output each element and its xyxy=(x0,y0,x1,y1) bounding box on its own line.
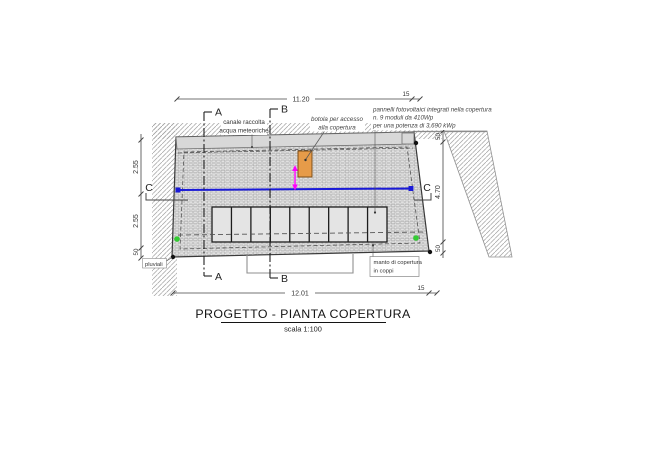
green-marker-right xyxy=(413,235,419,241)
pannelli-label-line2: n. 9 moduli da 410Wp xyxy=(373,115,434,122)
dim-top: 11.20 15 xyxy=(175,91,423,104)
drawing-svg: A A B B C C 11.20 15 12.01 15 2.55 2.55 xyxy=(0,0,650,459)
canale-leader-dot xyxy=(251,146,253,148)
gutter-end-box xyxy=(402,133,414,144)
canale-label-line2: acqua meteoriche xyxy=(219,128,269,135)
channel-endpoint-left xyxy=(176,188,181,193)
dim-right-top-label: 50 xyxy=(435,133,442,140)
dim-right-slope-label: 4.70 xyxy=(435,185,442,199)
title-block: PROGETTO - PIANTA COPERTURA scala 1:100 xyxy=(195,307,411,334)
pannelli-label-line1: pannelli fotovoltaici integrati nella co… xyxy=(372,107,492,114)
roof-access-hatch xyxy=(298,151,312,177)
dim-right: 50 4.70 50 xyxy=(435,129,446,259)
section-label-a-bottom: A xyxy=(215,271,222,283)
lower-volume-outline xyxy=(247,254,353,273)
dim-top-width-label: 11.20 xyxy=(293,97,310,104)
dim-left-upper-label: 2.55 xyxy=(133,160,140,174)
downpipe-dot-bottom-right xyxy=(428,250,432,254)
section-label-b-top: B xyxy=(281,104,288,116)
section-label-c-right: C xyxy=(423,182,431,194)
manto-label-line1: manto di copertura xyxy=(374,260,423,266)
dim-left-lower-label: 2.55 xyxy=(133,214,140,228)
section-label-c-left: C xyxy=(145,182,153,194)
botola-annotation: botola per accesso alla copertura xyxy=(310,114,365,132)
pv-panel-array xyxy=(212,207,387,242)
green-marker-left xyxy=(174,236,180,242)
page-title: PROGETTO - PIANTA COPERTURA xyxy=(195,307,411,321)
botola-label-line1: botola per accesso xyxy=(311,116,363,123)
section-label-b-bottom: B xyxy=(281,273,288,285)
dim-bottom-overhang-label: 15 xyxy=(418,285,425,292)
downpipe-dot-bottom-left xyxy=(171,255,175,259)
adjacent-building-hatch xyxy=(444,131,512,257)
dim-top-overhang-label: 15 xyxy=(403,91,410,98)
section-label-a-top: A xyxy=(215,107,222,119)
access-hatch-leader-dot xyxy=(304,159,306,161)
dim-right-bottom-label: 50 xyxy=(435,245,442,252)
roof-plan-drawing: A A B B C C 11.20 15 12.01 15 2.55 2.55 xyxy=(0,0,650,459)
downpipe-dot-top-right xyxy=(414,141,418,145)
pannelli-label-line3: per una potenza di 3,690 kWp xyxy=(372,123,456,130)
manto-label-line2: in coppi xyxy=(374,269,394,275)
manto-leader-dot xyxy=(372,245,374,247)
dim-bottom: 12.01 15 xyxy=(171,285,440,298)
pv-panel-row xyxy=(212,207,387,242)
dim-left-eaves-label: 50 xyxy=(133,248,140,255)
scale-label: scala 1:100 xyxy=(284,325,322,334)
canale-label-line1: canale raccolta xyxy=(223,119,265,126)
dim-left: 2.55 2.55 50 xyxy=(133,134,144,261)
pannelli-leader-dot xyxy=(374,211,376,213)
dim-bottom-width-label: 12.01 xyxy=(291,291,309,298)
pluviali-label: pluviali xyxy=(145,262,163,268)
channel-endpoint-right xyxy=(409,186,414,191)
botola-label-line2: alla copertura xyxy=(318,125,356,132)
